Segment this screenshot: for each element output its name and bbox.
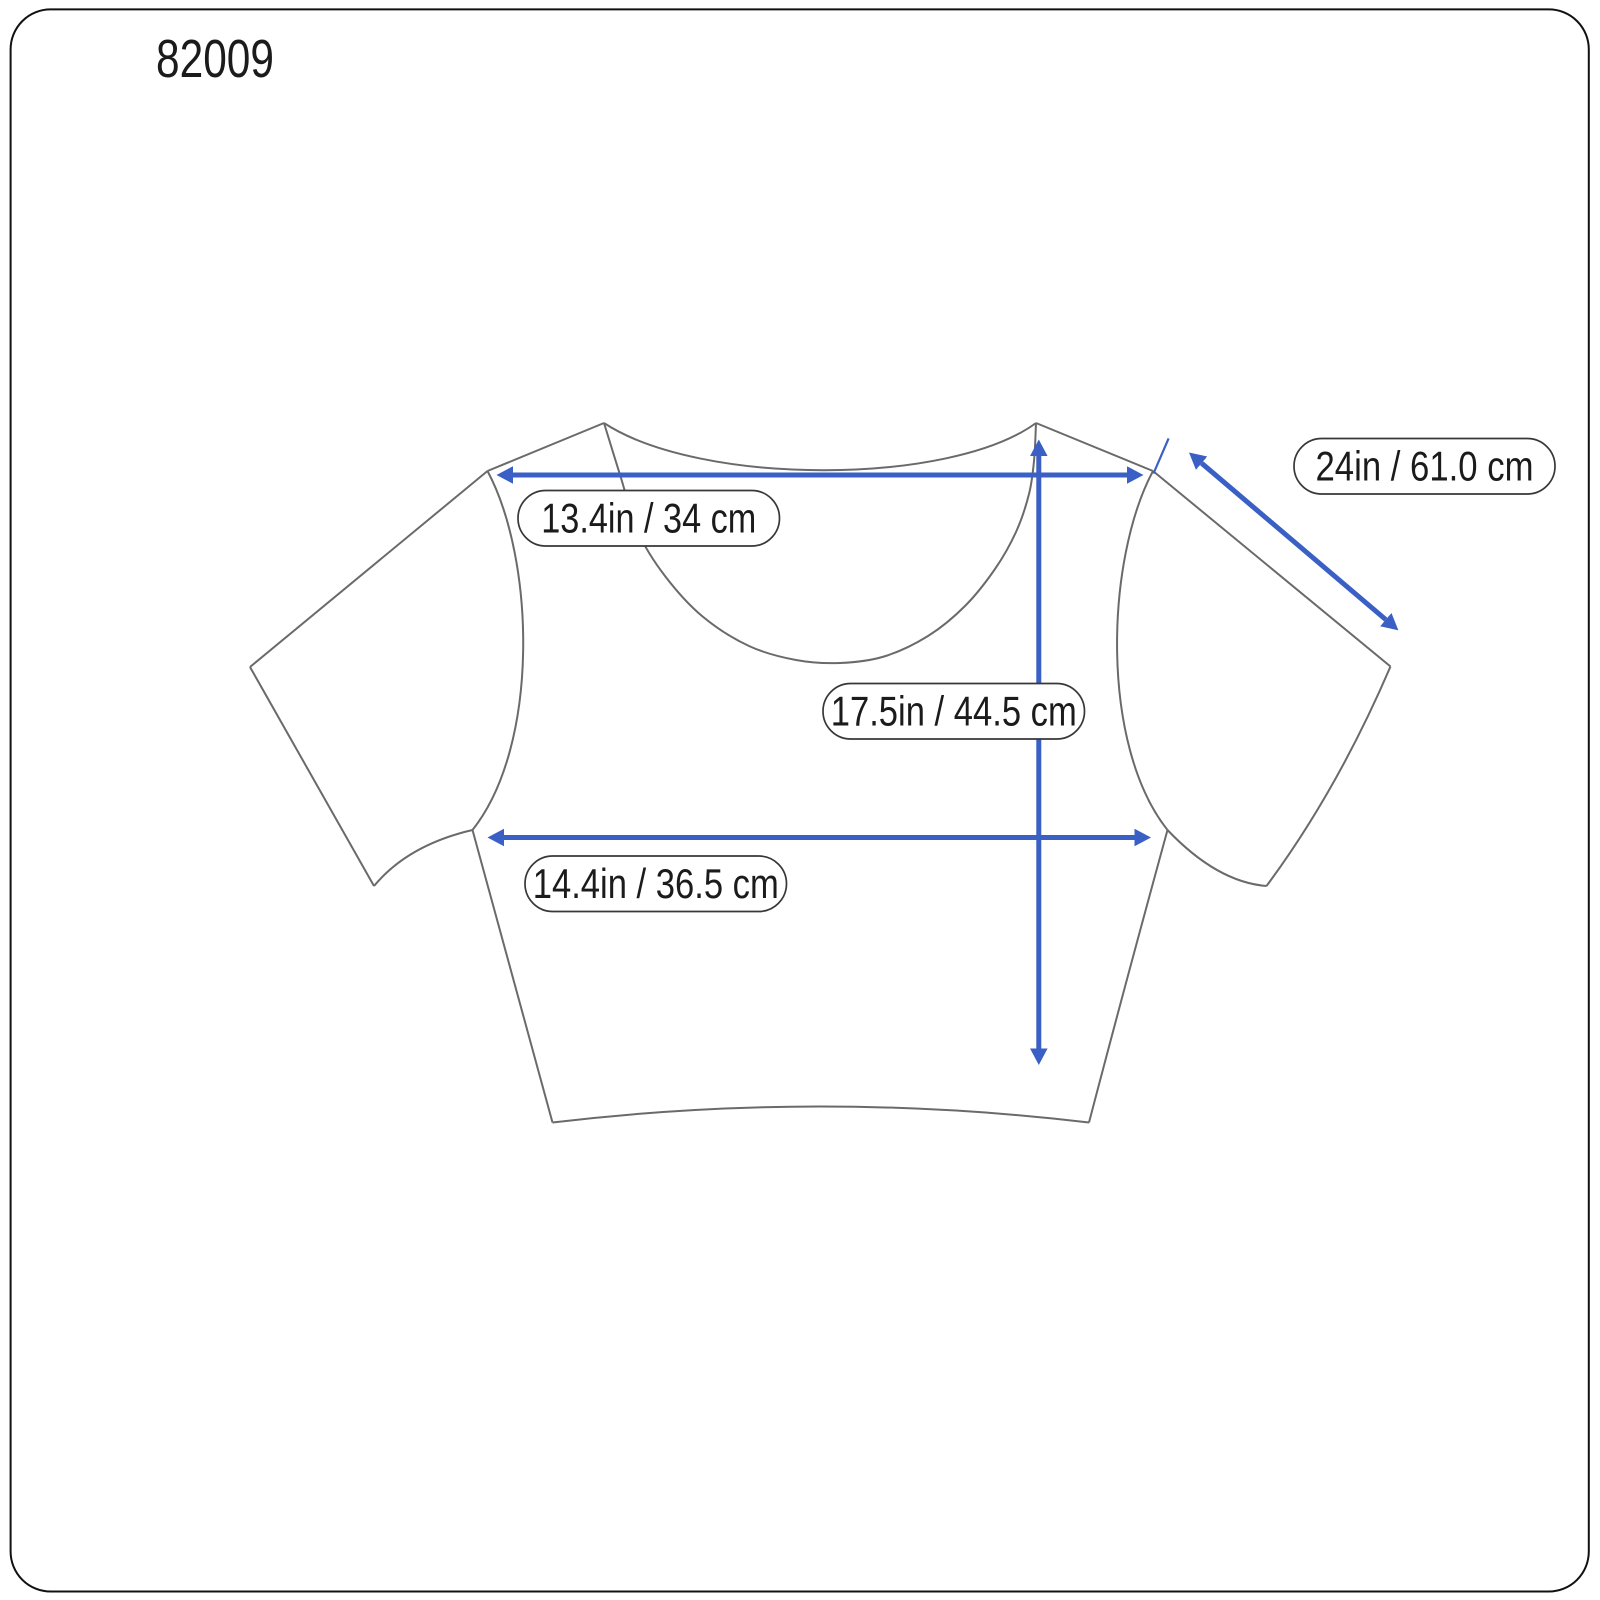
svg-text:14.4in / 36.5 cm: 14.4in / 36.5 cm bbox=[533, 860, 779, 907]
svg-text:13.4in / 34 cm: 13.4in / 34 cm bbox=[541, 495, 756, 542]
svg-text:24in / 61.0 cm: 24in / 61.0 cm bbox=[1316, 443, 1534, 490]
svg-text:82009: 82009 bbox=[156, 29, 274, 89]
svg-text:17.5in / 44.5 cm: 17.5in / 44.5 cm bbox=[831, 688, 1077, 735]
